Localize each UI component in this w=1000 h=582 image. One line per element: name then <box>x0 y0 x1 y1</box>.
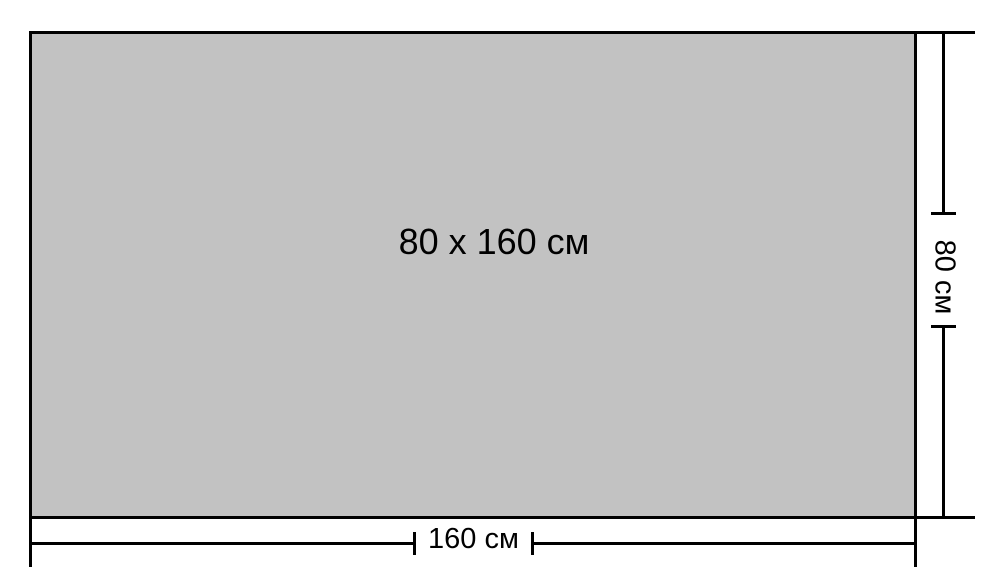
rectangle-size-label: 80 x 160 см <box>0 224 988 260</box>
top-extension-line <box>915 31 975 34</box>
width-dimension-label: 160 см <box>413 525 534 554</box>
width-dimension-line-right <box>534 542 917 545</box>
dimension-diagram: 80 x 160 см 80 см 160 см <box>0 0 1000 582</box>
bottom-right-extension-line <box>915 516 975 519</box>
height-dimension-tick-upper <box>931 212 956 215</box>
height-dimension-tick-lower <box>931 325 956 328</box>
width-dimension-line-left <box>29 542 413 545</box>
rectangle-shape <box>29 31 917 519</box>
height-dimension-line-lower <box>942 328 945 519</box>
height-dimension-label: 80 см <box>930 240 959 315</box>
height-dimension-line-upper <box>942 31 945 212</box>
